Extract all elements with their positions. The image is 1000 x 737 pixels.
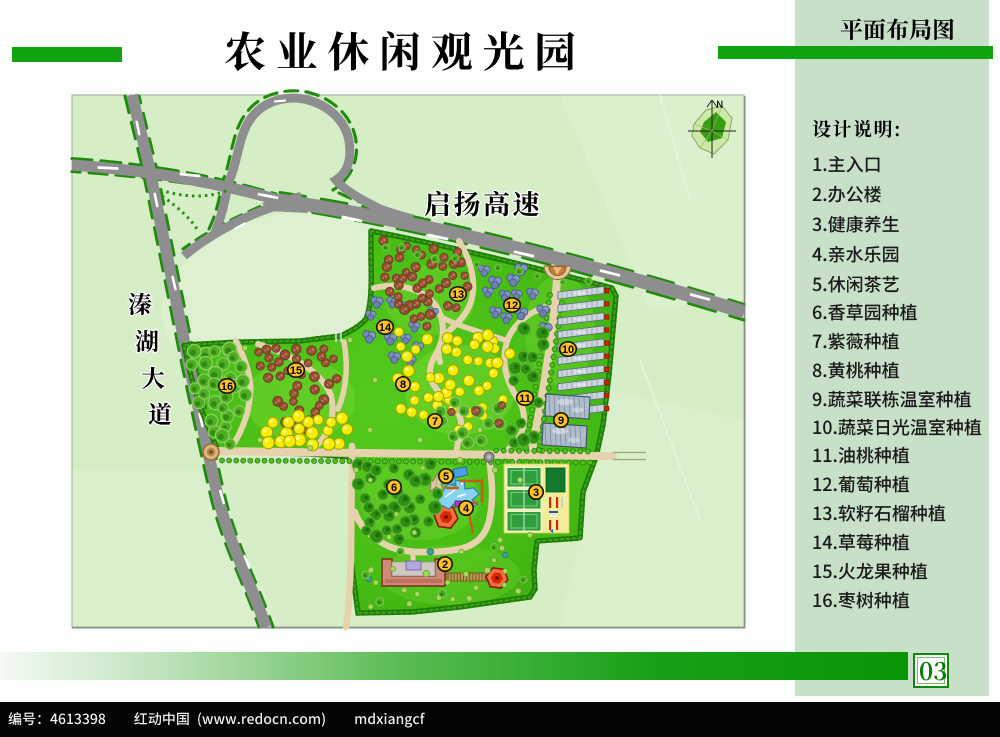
svg-text:7: 7 — [432, 416, 438, 428]
svg-text:2: 2 — [442, 559, 448, 571]
svg-text:6: 6 — [391, 482, 397, 494]
svg-text:15: 15 — [290, 365, 302, 377]
svg-text:16: 16 — [221, 381, 233, 393]
svg-text:11: 11 — [519, 393, 531, 405]
svg-text:4: 4 — [463, 503, 470, 515]
svg-text:10: 10 — [562, 344, 574, 356]
svg-text:9: 9 — [558, 415, 564, 427]
svg-text:14: 14 — [379, 322, 392, 334]
svg-text:8: 8 — [400, 379, 406, 391]
svg-text:5: 5 — [443, 471, 449, 483]
svg-text:12: 12 — [506, 300, 518, 312]
svg-text:13: 13 — [452, 289, 464, 301]
svg-text:3: 3 — [533, 487, 539, 499]
